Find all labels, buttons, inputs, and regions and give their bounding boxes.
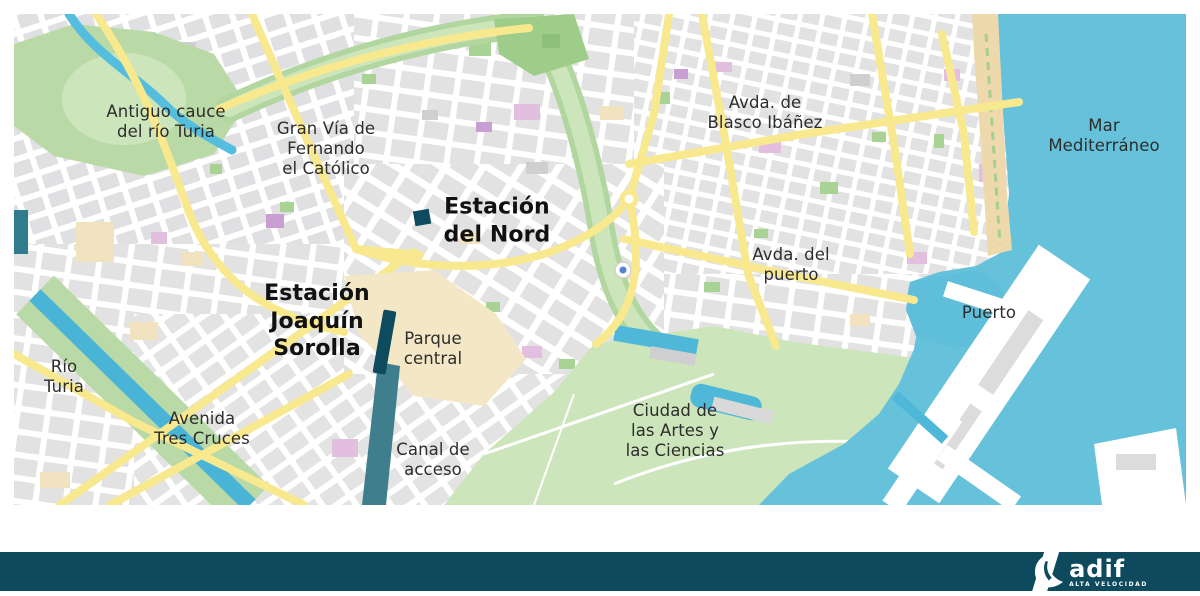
page: { "map": { "title": "Mapa de Valencia: e… (0, 0, 1200, 591)
estacion-del-nord-marker (413, 209, 431, 227)
footer-bar: adif ALTA VELOCIDAD (0, 552, 1200, 591)
map-graphic (14, 14, 1186, 505)
adif-brand: adif ALTA VELOCIDAD (1030, 555, 1148, 589)
roundabout (622, 192, 636, 206)
adif-wordmark: adif (1069, 557, 1148, 581)
adif-tagline: ALTA VELOCIDAD (1069, 582, 1148, 588)
city-map (14, 14, 1186, 505)
adif-logo-icon (1030, 555, 1064, 589)
